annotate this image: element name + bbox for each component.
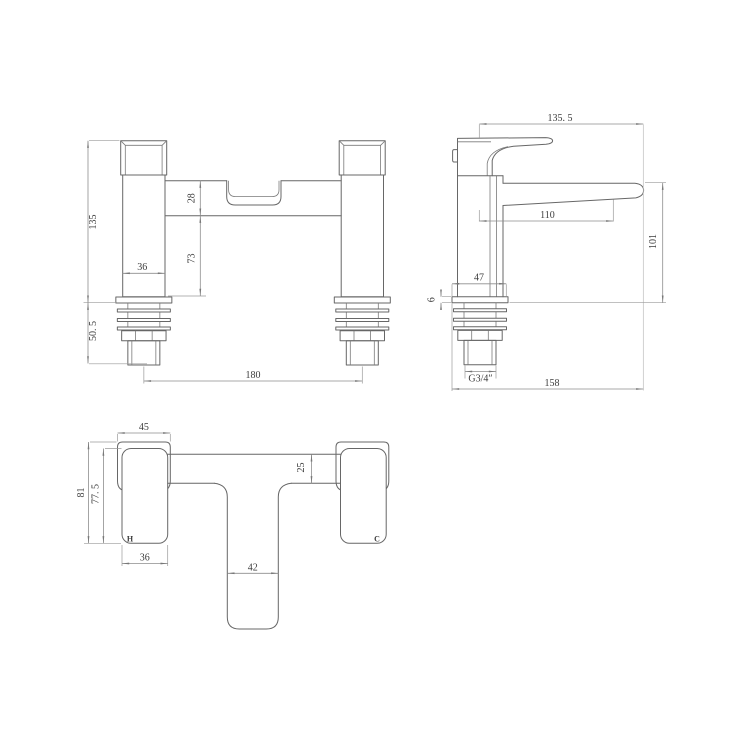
dim-front-overall-height: 135 [88, 215, 99, 230]
dim-side-overall-length: 158 [545, 378, 560, 389]
plan-left-handle [118, 442, 171, 543]
side-view: 135. 5 110 101 47 6 G3/4″ 158 [427, 113, 667, 391]
cold-indicator-label: C [374, 535, 380, 544]
dim-side-plate-thickness: 6 [427, 297, 438, 302]
front-right-pillar [339, 141, 385, 297]
dim-plan-spout-width: 42 [248, 562, 258, 573]
plan-bridge-and-spout [168, 454, 341, 629]
dim-plan-body-width: 36 [140, 553, 150, 564]
side-body-and-lever [453, 138, 553, 297]
hot-indicator-label: H [127, 535, 134, 544]
dim-front-shank-length: 50. 5 [88, 321, 99, 341]
dim-front-pillar-width: 36 [137, 262, 147, 273]
front-view: 135 50. 5 36 28 73 180 [84, 141, 391, 384]
dim-front-tap-centres: 180 [246, 370, 261, 381]
side-spout [503, 183, 644, 205]
side-mount [452, 297, 508, 365]
dim-side-spout-reach: 110 [540, 210, 555, 221]
dim-plan-handle-width: 45 [139, 422, 149, 433]
dim-side-thread-size: G3/4″ [468, 374, 492, 385]
front-dimensions: 135 50. 5 36 28 73 180 [84, 141, 363, 384]
dim-plan-body-depth: 77. 5 [91, 484, 102, 504]
front-right-mount [334, 297, 390, 365]
dim-side-base-width: 47 [474, 273, 484, 284]
side-dimensions: 135. 5 110 101 47 6 G3/4″ 158 [427, 113, 667, 391]
plan-right-handle [336, 442, 389, 543]
front-left-mount [116, 297, 172, 365]
dim-plan-overall-depth: 81 [76, 488, 87, 498]
dim-plan-bridge-depth: 25 [296, 463, 307, 473]
dim-front-bridge-height: 28 [187, 193, 198, 203]
dim-front-body-height: 73 [187, 254, 198, 264]
plan-view: H C 45 81 77. 5 25 36 42 [76, 422, 389, 629]
dim-side-overall-reach: 135. 5 [548, 113, 573, 124]
drawing-canvas: 135 50. 5 36 28 73 180 [0, 0, 750, 750]
technical-drawing-page: 135 50. 5 36 28 73 180 [0, 0, 750, 750]
dim-side-spout-height: 101 [648, 234, 659, 249]
front-spout [227, 181, 281, 205]
plan-dimensions: 45 81 77. 5 25 36 42 [76, 422, 312, 573]
